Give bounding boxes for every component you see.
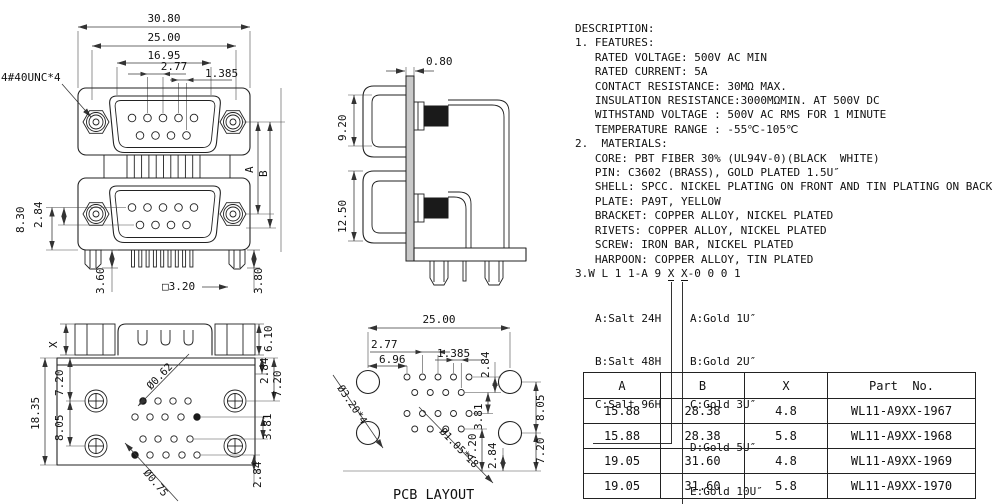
part-number-cell: WL11-A9XX-1969 [828,449,976,474]
lower-dsub-opening [110,186,221,243]
spec-line: RATED VOLTAGE: 500V AC MIN [575,51,995,65]
dim-12-50: 12.50 [336,200,349,233]
parts-table: A B X Part No. 15.88 28.38 4.8 WL11-A9XX… [583,372,976,499]
hex-nut [83,111,109,134]
material-line: CORE: PBT FIBER 30% (UL94V-0)(BLACK WHIT… [575,152,995,166]
dim-8-30: 8.30 [14,207,27,234]
dim-7-20-right-pcb: 7.20 [534,438,547,465]
part-number-cell: WL11-A9XX-1967 [828,399,976,424]
table-row: 19.05 31.60 5.8 WL11-A9XX-1970 [584,474,976,499]
solder-pins [132,250,193,267]
salt-option: B:Salt 48H [595,355,671,369]
rivet [85,390,107,412]
dim-8-05-left: 8.05 [53,415,66,442]
dim-0-80: 0.80 [426,55,453,68]
dia-0-75-label: Ø0.75 [141,467,171,499]
hex-nut [220,203,246,226]
dim-18-35: 18.35 [29,397,42,430]
part-code-suffix: -0 0 0 1 [688,267,741,280]
dim-2-77-pcb: 2.77 [371,338,398,351]
screw-spec-label: 4#40UNC*4 [1,71,61,84]
spec-line: WITHSTAND VOLTAGE : 500V AC RMS FOR 1 MI… [575,108,995,122]
material-line: SCREW: IRON BAR, NICKEL PLATED [575,238,995,252]
dia-3-20-label: Ø3.20*4 [335,383,370,426]
spec-line: RATED CURRENT: 5A [575,65,995,79]
dia-0-62-label: Ø0.62 [145,361,176,392]
material-line: SHELL: SPCC. NICKEL PLATING ON FRONT AND… [575,180,995,194]
dim-6-96: 6.96 [379,353,406,366]
upper-connector-side [363,86,406,157]
drawing-sheet: 30.80 25.00 16.95 2.77 1.385 4#40UNC*4 [0,0,997,504]
features-heading: 1. FEATURES: [575,36,995,50]
dim-2-84-bot-pcb: 2.84 [486,442,499,469]
salt-option: A:Salt 24H [595,312,671,326]
mounting-plate [406,76,414,261]
col-header-x: X [745,373,828,399]
rivet [224,435,246,457]
description-block: DESCRIPTION: 1. FEATURES: RATED VOLTAGE:… [575,22,995,281]
dim-25-00-pcb: 25.00 [422,313,455,326]
pcb-pin-holes [404,374,472,432]
hex-nut [83,203,109,226]
pin-holes [132,398,200,458]
part-number-cell: WL11-A9XX-1970 [828,474,976,499]
lower-connector-side [363,171,406,243]
part-number-code: 3.W L 1 1-A 9 X X-0 0 0 1 [575,267,995,281]
dim-b-label: B [257,170,270,177]
material-line: BRACKET: COPPER ALLOY, NICKEL PLATED [575,209,995,223]
gold-option: A:Gold 1U″ [690,312,788,326]
dim-x-label: X [47,341,60,348]
harpoon-legs [430,261,503,285]
side-view-drawing: 0.80 9.20 12.50 [330,48,570,308]
col-header-b: B [661,373,745,399]
lower-flange [78,178,250,250]
dim-3-81: 3.81 [261,414,274,441]
bracket-arm [448,100,509,248]
dim-sq-3-20: □3.20 [162,280,195,293]
top-profile [75,324,255,355]
threaded-stud [424,198,448,218]
table-row: 15.88 28.38 4.8 WL11-A9XX-1967 [584,399,976,424]
dim-1-385-pcb: 1.385 [437,347,470,360]
col-header-partno: Part No. [828,373,976,399]
dim-2-84-top-pcb: 2.84 [479,351,492,378]
dim-2-77: 2.77 [161,60,188,73]
material-line: HARPOON: COPPER ALLOY, TIN PLATED [575,253,995,267]
dim-7-20-right: 7.20 [271,371,284,398]
dim-1-385: 1.385 [205,67,238,80]
pcb-layout-drawing: 25.00 2.77 6.96 1.385 2.84 8.05 [335,308,575,504]
upper-dsub-opening [110,96,221,153]
rivet [85,435,107,457]
dim-a-label: A [243,166,256,173]
dim-3-60: 3.60 [94,268,107,295]
dim-2-84-bottom: 2.84 [251,461,264,488]
jack-screw-nut [414,194,424,222]
table-row: 15.88 28.38 5.8 WL11-A9XX-1968 [584,424,976,449]
bracket-legs [85,250,245,269]
bottom-view-drawing: X 6.10 18.35 7.20 8.05 2.84 [30,310,330,504]
dim-2-84: 2.84 [32,201,45,228]
stack-strip [104,155,230,178]
dim-25-00: 25.00 [147,31,180,44]
dim-3-80: 3.80 [252,268,265,295]
dim-30-80: 30.80 [147,12,180,25]
dim-7-20-left: 7.20 [53,370,66,397]
table-row: 19.05 31.60 4.8 WL11-A9XX-1969 [584,449,976,474]
part-code-prefix: 3.W L 1 1-A 9 [575,267,668,280]
rivet [224,390,246,412]
dim-2-84-top: 2.84 [258,357,271,384]
gold-option: B:Gold 2U″ [690,355,788,369]
description-title: DESCRIPTION: [575,22,995,36]
dim-9-20: 9.20 [336,115,349,142]
material-line: RIVETS: COPPER ALLOY, NICKEL PLATED [575,224,995,238]
pcb-layout-title: PCB LAYOUT [393,487,474,503]
bracket-arm [448,192,471,248]
base-plate [414,248,526,261]
dim-6-10: 6.10 [262,326,275,353]
part-code-x2: X [681,267,688,281]
front-view-drawing: 30.80 25.00 16.95 2.77 1.385 4#40UNC*4 [0,0,330,312]
threaded-stud [424,106,448,126]
part-number-cell: WL11-A9XX-1968 [828,424,976,449]
dim-8-05-pcb: 8.05 [534,395,547,422]
jack-screw-nut [414,102,424,130]
spec-line: CONTACT RESISTANCE: 30MΩ MAX. [575,80,995,94]
table-header-row: A B X Part No. [584,373,976,399]
material-line: PLATE: PA9T, YELLOW [575,195,995,209]
spec-line: TEMPERATURE RANGE : -55℃-105℃ [575,123,995,137]
col-header-a: A [584,373,661,399]
spec-line: INSULATION RESISTANCE:3000MΩMIN. AT 500V… [575,94,995,108]
materials-heading: 2. MATERIALS: [575,137,995,151]
material-line: PIN: C3602 (BRASS), GOLD PLATED 1.5U″ [575,166,995,180]
dim-3-81-pcb: 3.81 [472,404,485,431]
